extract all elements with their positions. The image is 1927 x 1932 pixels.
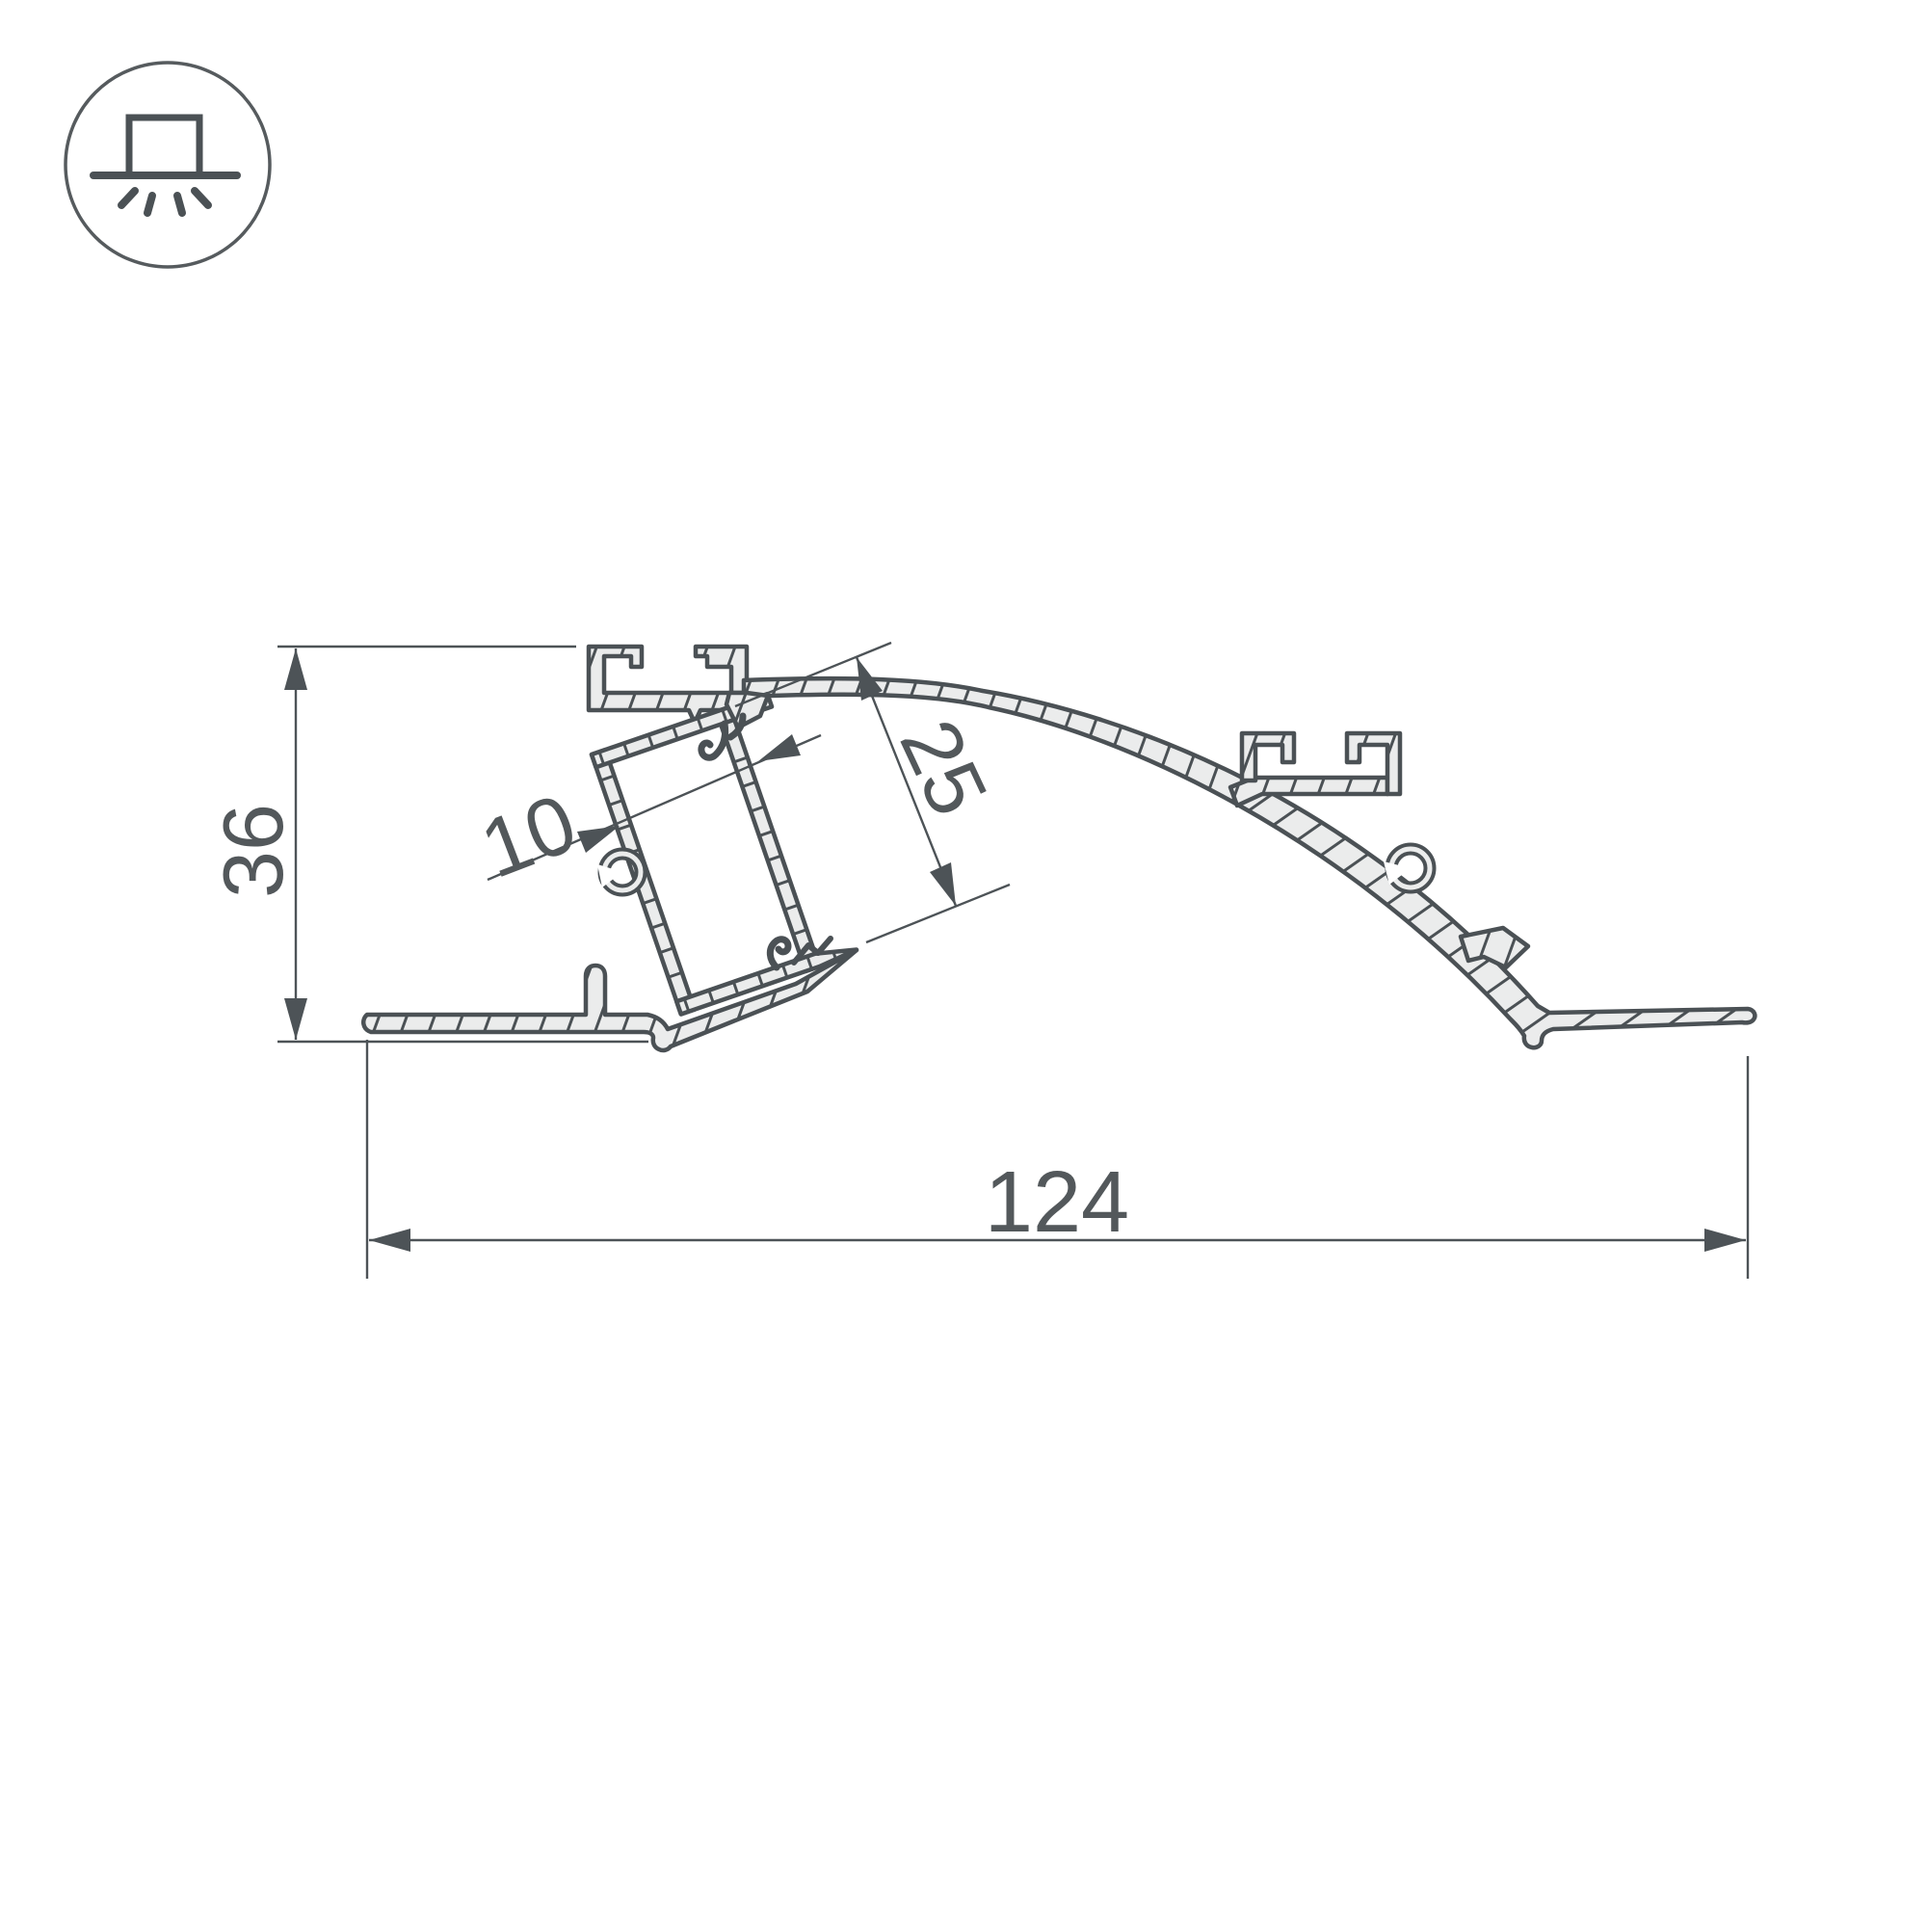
svg-text:124: 124: [985, 1154, 1129, 1251]
svg-text:36: 36: [205, 804, 301, 898]
